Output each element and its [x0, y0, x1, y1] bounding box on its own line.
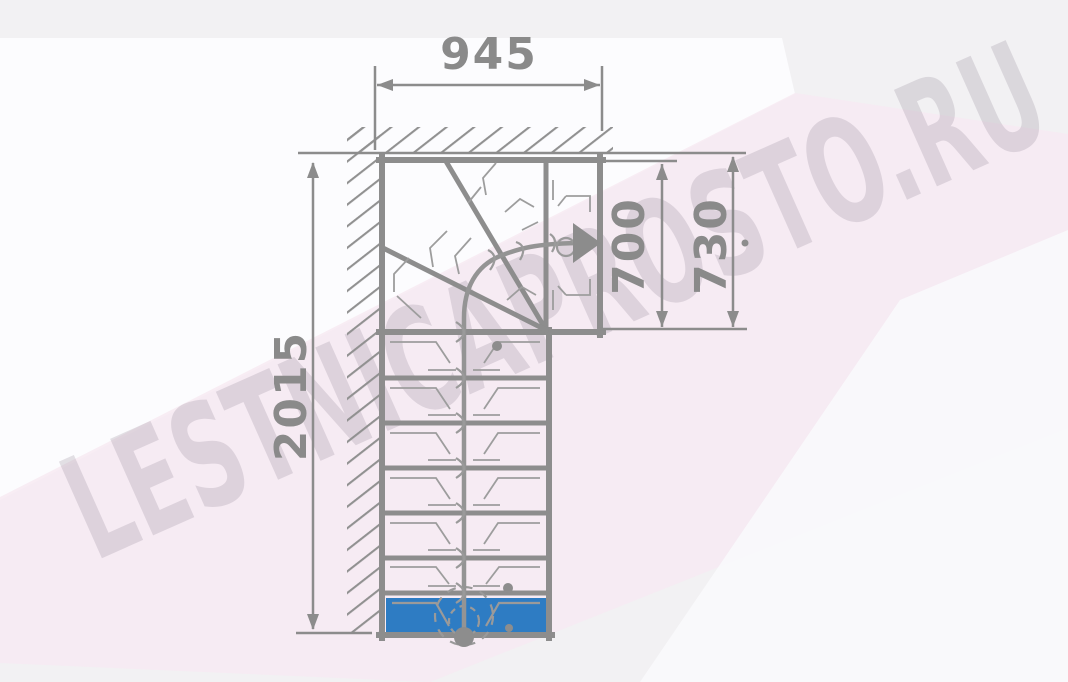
walk-line-start-marker — [454, 627, 474, 647]
walk-direction-arrow-icon — [573, 223, 601, 263]
dim-label-total-length: 2015 — [266, 331, 317, 461]
walk-line — [454, 223, 601, 647]
dim-label-exit-outer: 730 — [686, 197, 737, 295]
top-wall-hatch — [347, 127, 613, 154]
dimension-exit-inner: 700 — [600, 161, 677, 327]
dim-label-exit-inner: 700 — [604, 197, 655, 295]
left-wall-hatch — [347, 127, 380, 632]
staircase-drawing: 945 2015 700 730 — [0, 0, 1068, 682]
staircase-plan-screenshot: LESTNICAPROSTO.RU — [0, 0, 1068, 682]
dim-label-top-width: 945 — [440, 29, 538, 80]
